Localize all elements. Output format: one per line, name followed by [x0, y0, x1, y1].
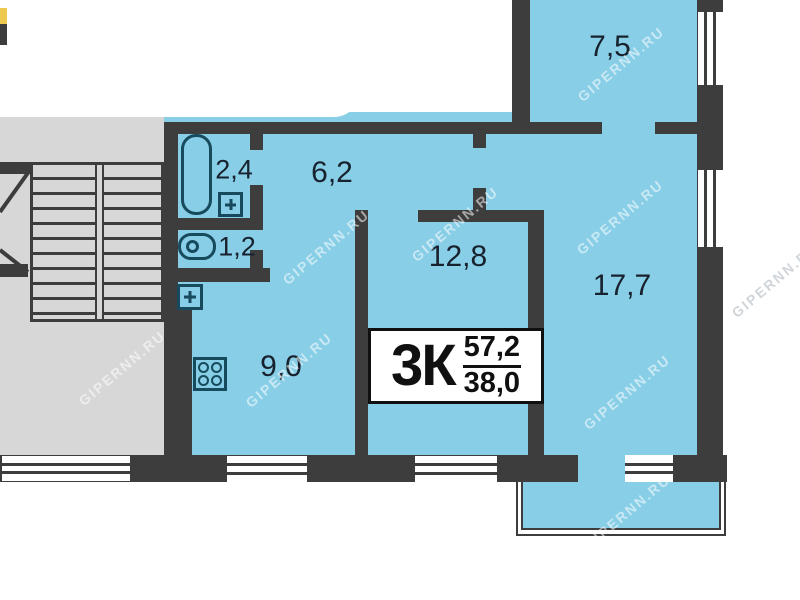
elevator-icon	[0, 166, 34, 278]
total-area-value: 57,2	[463, 332, 521, 368]
wall	[655, 122, 698, 134]
masked-area	[300, 0, 512, 106]
wall	[473, 134, 486, 148]
bathtub-icon	[181, 134, 212, 215]
edge-artifact	[0, 24, 7, 45]
stove-icon	[193, 357, 227, 391]
wall	[164, 300, 192, 458]
wall	[178, 218, 263, 230]
wall	[164, 122, 602, 134]
wall	[512, 0, 530, 134]
burner-icon	[198, 362, 209, 373]
wall	[355, 210, 368, 455]
living-area-value: 38,0	[464, 368, 520, 400]
window	[2, 456, 130, 481]
floor-plan: 7,5 2,4 6,2 1,2 12,8 17,7 9,0 3К 57,2 38…	[0, 0, 800, 600]
toilet-icon	[178, 233, 216, 260]
watermark: GIPERNN.RU	[729, 239, 800, 321]
edge-artifact	[0, 8, 7, 24]
room-label-bath: 2,4	[215, 155, 253, 186]
wall	[178, 268, 270, 282]
staircase	[30, 162, 164, 322]
room-label-right-room: 17,7	[593, 269, 651, 303]
burner-icon	[198, 375, 209, 386]
window	[415, 456, 497, 482]
burner-icon	[211, 362, 222, 373]
window	[698, 12, 723, 85]
vent-icon	[218, 192, 243, 217]
stair-flight	[33, 165, 95, 319]
window	[227, 456, 307, 482]
room-label-hall: 6,2	[311, 156, 353, 190]
apartment-info-box: 3К 57,2 38,0	[368, 328, 544, 404]
stair-flight	[104, 165, 161, 319]
vent-icon	[177, 284, 203, 310]
apartment-type-label: 3К	[391, 337, 455, 395]
apartment-area-fraction: 57,2 38,0	[463, 332, 521, 400]
burner-icon	[211, 375, 222, 386]
room-label-wc: 1,2	[218, 232, 256, 263]
balcony-door-opening	[578, 455, 625, 482]
wall	[250, 134, 263, 150]
window	[698, 170, 723, 247]
toilet-tank-icon	[186, 240, 199, 253]
stair-divider	[95, 165, 104, 319]
